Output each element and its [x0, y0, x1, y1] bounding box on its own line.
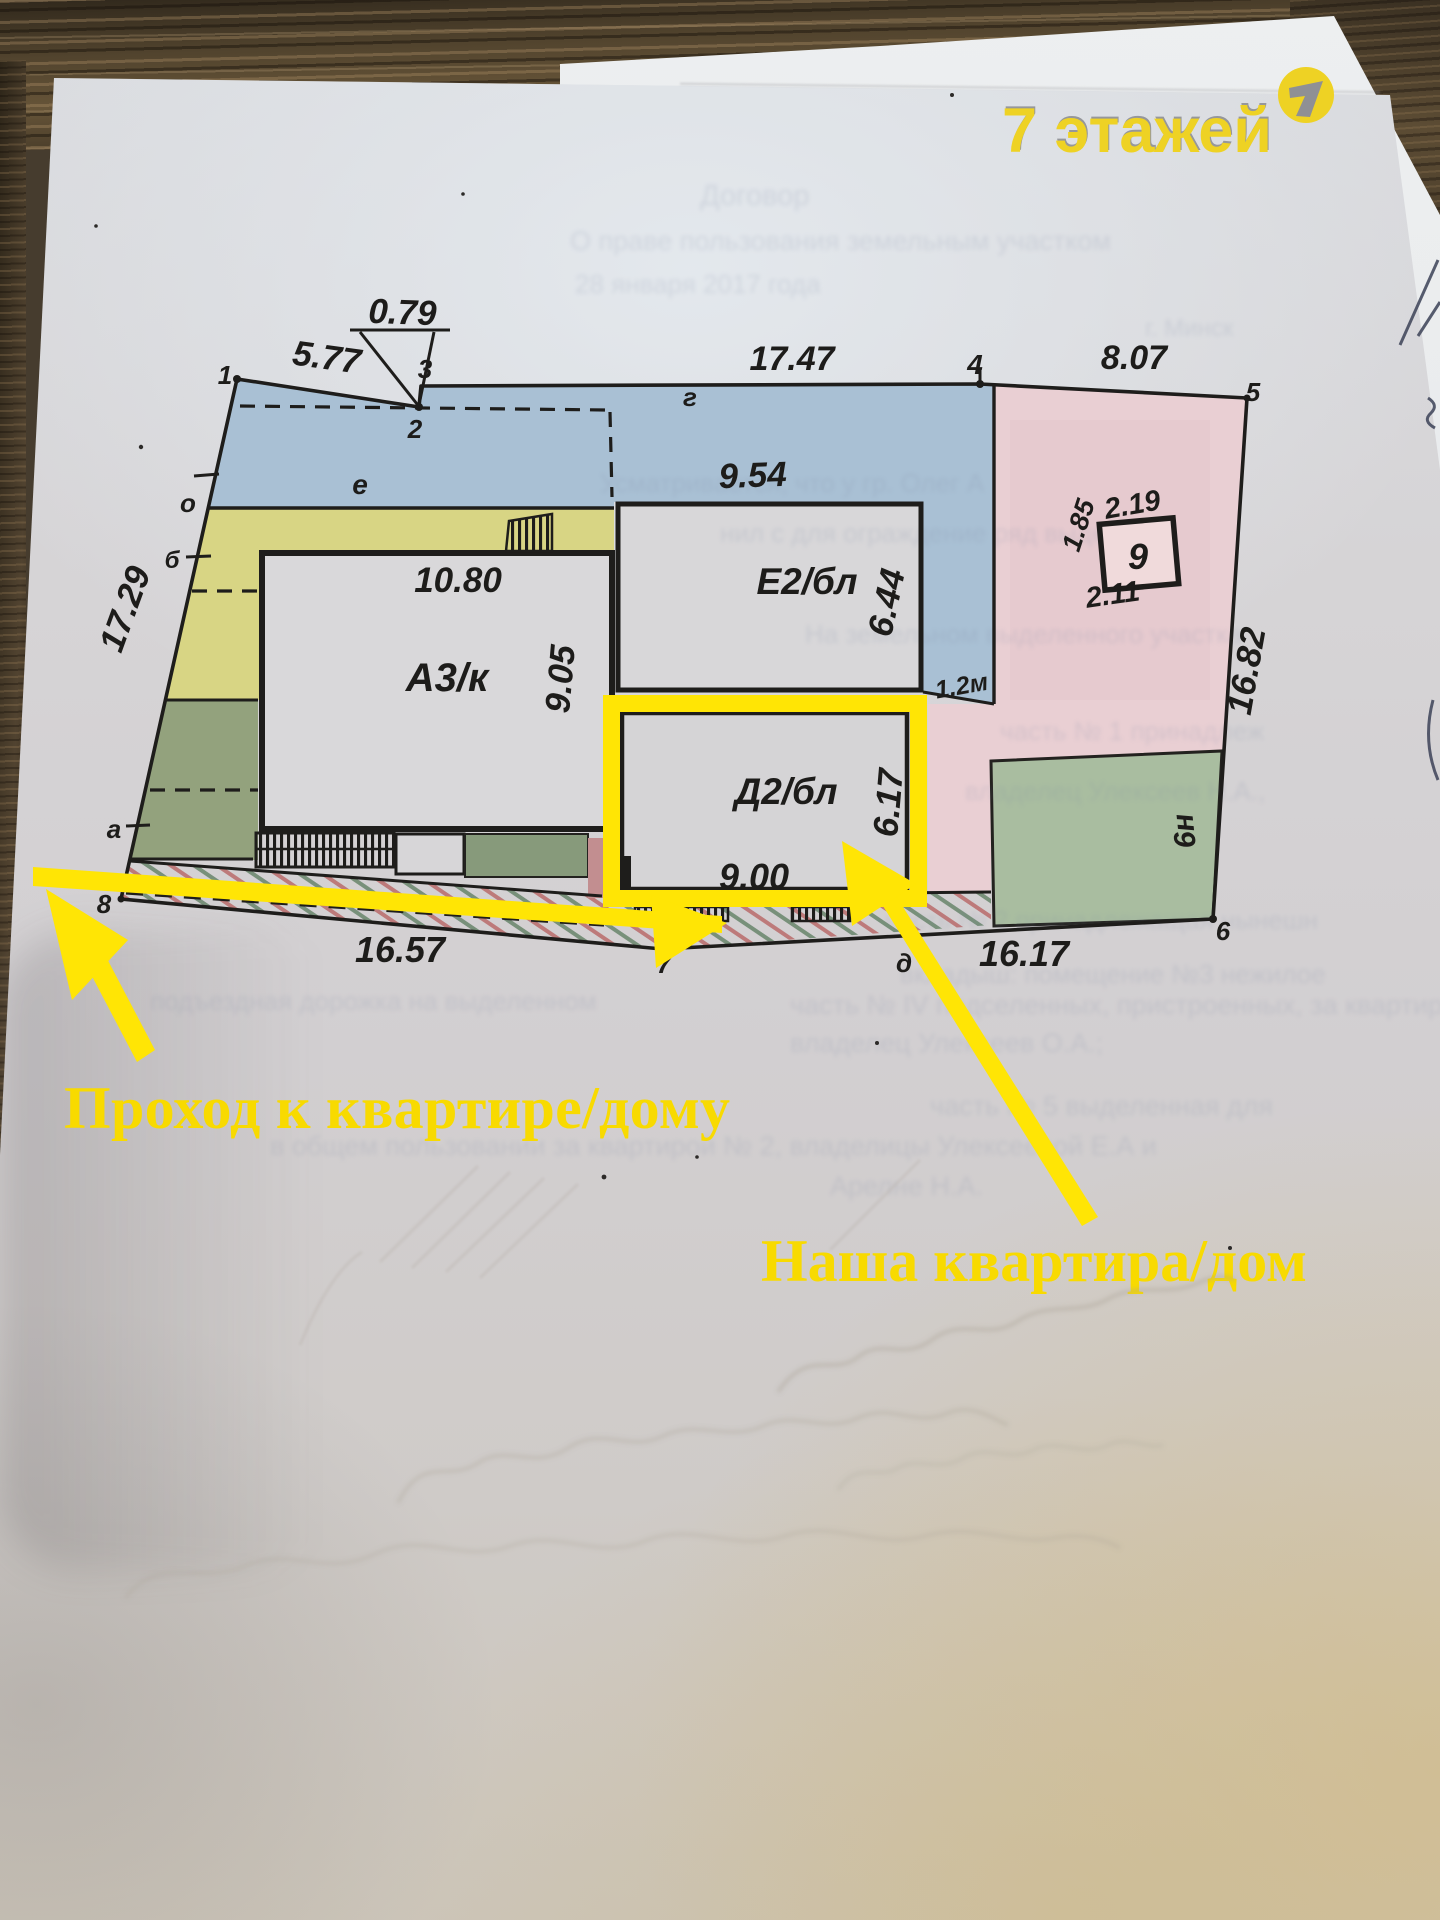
svg-text:8.07: 8.07	[1101, 339, 1169, 377]
svg-text:Проход к квартире/дому: Проход к квартире/дому	[64, 1075, 730, 1141]
svg-text:б: б	[165, 547, 181, 574]
svg-text:8: 8	[97, 889, 112, 919]
svg-text:10.80: 10.80	[414, 561, 502, 600]
svg-text:владелец Улексеев О.А.;: владелец Улексеев О.А.;	[790, 1028, 1103, 1058]
svg-text:Усматривается, что у гр. Олег: Усматривается, что у гр. Олег А	[600, 468, 985, 498]
svg-text:9.54: 9.54	[718, 455, 787, 496]
svg-text:Наша квартира/дом: Наша квартира/дом	[761, 1228, 1307, 1294]
svg-text:д: д	[896, 948, 912, 978]
svg-text:вкладыш: помещение №3 нежилое: вкладыш: помещение №3 нежилое	[900, 959, 1326, 989]
svg-text:часть № 5 выделенная для: часть № 5 выделенная для	[930, 1091, 1273, 1121]
svg-text:17.29: 17.29	[92, 561, 159, 657]
svg-text:17.47: 17.47	[749, 340, 836, 378]
svg-text:16.57: 16.57	[355, 929, 447, 970]
svg-text:а: а	[107, 814, 121, 844]
svg-text:Договор: Договор	[700, 180, 810, 212]
svg-text:1: 1	[218, 360, 232, 390]
svg-text:5.77: 5.77	[290, 334, 364, 382]
svg-text:0.79: 0.79	[368, 292, 438, 333]
svg-text:о: о	[180, 488, 196, 518]
svg-text:6: 6	[1216, 916, 1231, 946]
svg-text:4: 4	[966, 349, 983, 380]
svg-text:часть № IV подселенных, пристр: часть № IV подселенных, пристроенных, за…	[790, 990, 1440, 1020]
svg-text:7 этажей: 7 этажей	[1002, 96, 1272, 166]
svg-text:6.17: 6.17	[866, 766, 911, 839]
svg-text:часть № 2 принадлежащая нынешн: часть № 2 принадлежащая нынешн	[885, 905, 1318, 935]
svg-text:2: 2	[407, 414, 423, 444]
svg-text:г. Минск: г. Минск	[1145, 315, 1234, 342]
svg-text:Д2/бл: Д2/бл	[731, 771, 837, 812]
svg-text:г: г	[683, 382, 697, 412]
svg-text:16.17: 16.17	[979, 933, 1071, 974]
svg-text:5: 5	[1246, 377, 1261, 407]
svg-text:3: 3	[418, 354, 433, 384]
svg-text:Е2/бл: Е2/бл	[757, 561, 858, 602]
svg-text:9: 9	[1128, 536, 1148, 577]
svg-text:9.05: 9.05	[538, 643, 583, 715]
svg-text:е: е	[352, 469, 368, 500]
svg-text:28 января 2017 года: 28 января 2017 года	[575, 269, 821, 299]
svg-text:А3/к: А3/к	[405, 656, 490, 700]
svg-text:6н: 6н	[1166, 812, 1202, 850]
svg-text:подъездная дорожка на выделенн: подъездная дорожка на выделенном	[150, 986, 597, 1016]
svg-text:О праве пользования земельным: О праве пользования земельным участком	[570, 226, 1111, 256]
